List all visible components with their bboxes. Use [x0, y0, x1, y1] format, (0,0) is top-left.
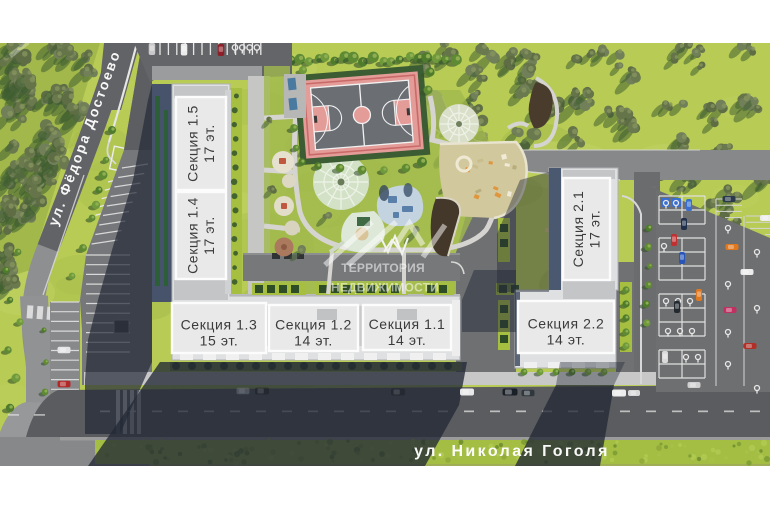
svg-text:15 эт.: 15 эт. [200, 333, 239, 349]
svg-text:Секция 1.2: Секция 1.2 [275, 317, 352, 333]
svg-text:14 эт.: 14 эт. [388, 332, 427, 348]
svg-text:17 эт.: 17 эт. [587, 210, 603, 249]
svg-text:НЕДВИЖИМОСТИ: НЕДВИЖИМОСТИ [331, 281, 439, 295]
svg-text:17 эт.: 17 эт. [201, 216, 217, 255]
svg-text:Секция 2.1: Секция 2.1 [570, 191, 586, 268]
svg-text:Секция 2.2: Секция 2.2 [528, 316, 605, 332]
svg-text:17 эт.: 17 эт. [201, 124, 217, 163]
svg-text:ул. Николая Гоголя: ул. Николая Гоголя [414, 443, 610, 460]
svg-text:ТЕРРИТОРИЯ: ТЕРРИТОРИЯ [341, 261, 425, 275]
svg-text:Секция 1.5: Секция 1.5 [185, 105, 201, 182]
svg-text:Секция 1.3: Секция 1.3 [181, 317, 258, 333]
svg-text:Секция 1.4: Секция 1.4 [185, 197, 201, 274]
svg-text:14 эт.: 14 эт. [294, 333, 333, 349]
svg-text:14 эт.: 14 эт. [547, 332, 586, 348]
